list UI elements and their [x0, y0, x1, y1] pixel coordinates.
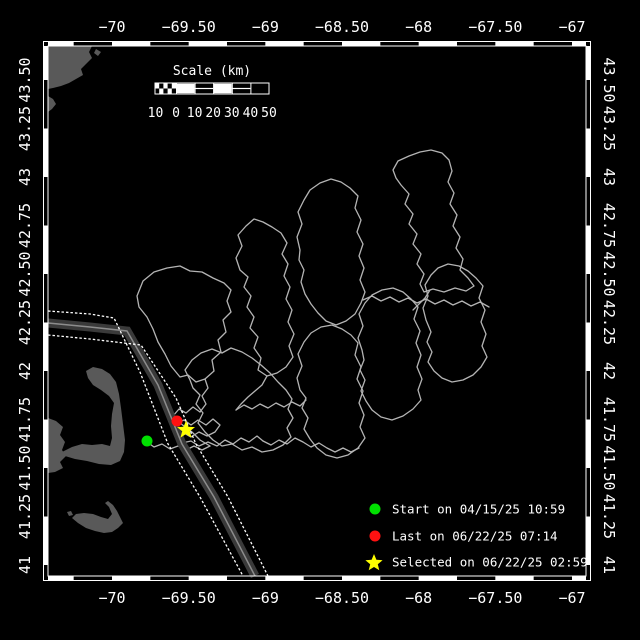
lat-tick-label-right: 41.75: [600, 397, 618, 442]
frame-segment: [265, 42, 303, 46]
glider-track-map: −70−70−69.50−69.50−69−69−68.50−68.50−68−…: [0, 0, 640, 640]
frame-segment: [44, 517, 48, 566]
frame-segment: [342, 42, 380, 46]
lat-tick-label-right: 41.25: [600, 494, 618, 539]
lat-tick-label-left: 43.25: [16, 106, 34, 151]
land-polygon: [48, 418, 66, 473]
glider-track-line: [200, 379, 208, 412]
frame-segment: [572, 576, 586, 580]
start-marker[interactable]: [142, 436, 153, 447]
lat-tick-label-right: 42: [600, 362, 618, 380]
lat-tick-label-left: 42.75: [16, 203, 34, 248]
lat-tick-label-left: 42: [16, 362, 34, 380]
frame-segment: [44, 226, 48, 275]
frame-segment: [112, 576, 150, 580]
glider-track-line: [393, 150, 474, 292]
legend-selected-star-icon: [365, 554, 382, 570]
lat-tick-label-right: 41: [600, 556, 618, 574]
scale-bar-segment-midline: [232, 88, 251, 89]
lat-tick-label-right: 43: [600, 168, 618, 186]
frame-segment: [495, 576, 533, 580]
lat-tick-label-left: 42.50: [16, 251, 34, 296]
lon-tick-label-top: −68: [405, 18, 432, 36]
land-polygon: [48, 46, 92, 89]
glider-track-line: [297, 179, 365, 325]
frame-segment: [586, 226, 590, 275]
lat-tick-label-left: 43: [16, 168, 34, 186]
frame-segment: [189, 576, 227, 580]
scale-bar-subcell: [168, 89, 172, 94]
frame-segment: [48, 42, 74, 46]
land-polygon: [94, 49, 101, 56]
scale-bar-segment-filled: [176, 84, 195, 93]
frame-segment: [342, 576, 380, 580]
lon-tick-label-top: −69: [252, 18, 279, 36]
lon-tick-label-bottom: −69.50: [162, 589, 216, 607]
scale-bar-title: Scale (km): [173, 64, 251, 79]
glider-track-line: [236, 219, 294, 376]
lon-tick-label-top: −70: [98, 18, 125, 36]
scale-bar-segment-filled: [213, 84, 232, 93]
lat-tick-label-right: 43.50: [600, 57, 618, 102]
scale-bar-number: 10: [148, 106, 164, 121]
frame-segment: [44, 323, 48, 372]
lon-tick-label-bottom: −67: [558, 589, 585, 607]
glider-track-line: [185, 348, 293, 452]
lat-tick-label-left: 41.75: [16, 397, 34, 442]
lat-tick-label-left: 43.50: [16, 57, 34, 102]
lat-tick-label-right: 41.50: [600, 445, 618, 490]
lon-tick-label-bottom: −67.50: [468, 589, 522, 607]
frame-segment: [586, 420, 590, 469]
frame-segment: [419, 576, 457, 580]
frame-segment: [44, 129, 48, 178]
legend-start-dot-icon: [370, 504, 381, 515]
legend-label: Last on 06/22/25 07:14: [392, 529, 558, 544]
lon-tick-label-bottom: −70: [98, 589, 125, 607]
lat-tick-label-right: 42.25: [600, 300, 618, 345]
frame-segment: [572, 42, 586, 46]
last-marker[interactable]: [172, 416, 183, 427]
lon-tick-label-top: −69.50: [162, 18, 216, 36]
lat-tick-label-left: 41.25: [16, 494, 34, 539]
land-polygon: [48, 96, 56, 112]
land-layer: [48, 46, 125, 533]
lon-tick-label-bottom: −68.50: [315, 589, 369, 607]
frame-segment: [586, 46, 590, 80]
scale-bar-subcell: [172, 84, 176, 89]
frame-segment: [44, 420, 48, 469]
frame-segment: [189, 42, 227, 46]
scale-bar-number: 0: [172, 106, 180, 121]
lon-tick-label-top: −67.50: [468, 18, 522, 36]
lat-tick-label-left: 41.50: [16, 445, 34, 490]
lon-tick-label-bottom: −68: [405, 589, 432, 607]
frame-segment: [265, 576, 303, 580]
lat-tick-label-right: 43.25: [600, 106, 618, 151]
frame-segment: [419, 42, 457, 46]
frame-segment: [48, 576, 74, 580]
legend: Start on 04/15/25 10:59Last on 06/22/25 …: [365, 502, 587, 571]
scale-bar-number: 40: [243, 106, 259, 121]
lon-tick-label-top: −68.50: [315, 18, 369, 36]
legend-label: Selected on 06/22/25 02:59: [392, 555, 588, 570]
lon-tick-label-top: −67: [558, 18, 585, 36]
lat-tick-label-left: 42.25: [16, 300, 34, 345]
glider-track-line: [297, 325, 365, 458]
land-polygon: [67, 511, 73, 516]
frame-segment: [44, 46, 48, 80]
scale-bar-number: 30: [224, 106, 240, 121]
scale-bar: Scale (km)1001020304050: [148, 64, 277, 121]
glider-track-line: [423, 264, 487, 382]
lat-tick-label-right: 42.50: [600, 251, 618, 296]
frame-segment: [495, 42, 533, 46]
legend-label: Start on 04/15/25 10:59: [392, 502, 565, 517]
lat-tick-label-right: 42.75: [600, 203, 618, 248]
land-polygon: [72, 501, 123, 533]
scale-bar-number: 10: [187, 106, 203, 121]
track-layer: [137, 150, 489, 458]
frame-segment: [112, 42, 150, 46]
map-canvas[interactable]: −70−70−69.50−69.50−69−69−68.50−68.50−68−…: [0, 0, 640, 640]
scale-bar-number: 20: [205, 106, 221, 121]
scale-bar-number: 50: [261, 106, 277, 121]
scale-bar-subcell: [163, 84, 167, 89]
frame-segment: [586, 323, 590, 372]
scale-bar-subcell: [155, 84, 159, 89]
land-polygon: [62, 367, 125, 465]
legend-last-dot-icon: [370, 531, 381, 542]
glider-track-line: [358, 288, 422, 420]
glider-track-line: [236, 400, 306, 410]
scale-bar-subcell: [159, 89, 163, 94]
lat-tick-label-left: 41: [16, 556, 34, 574]
lon-tick-label-bottom: −69: [252, 589, 279, 607]
scale-bar-segment-midline: [195, 88, 214, 89]
shipping-lane: [48, 311, 268, 576]
scale-bar-divider: [250, 83, 251, 94]
frame-segment: [586, 129, 590, 178]
